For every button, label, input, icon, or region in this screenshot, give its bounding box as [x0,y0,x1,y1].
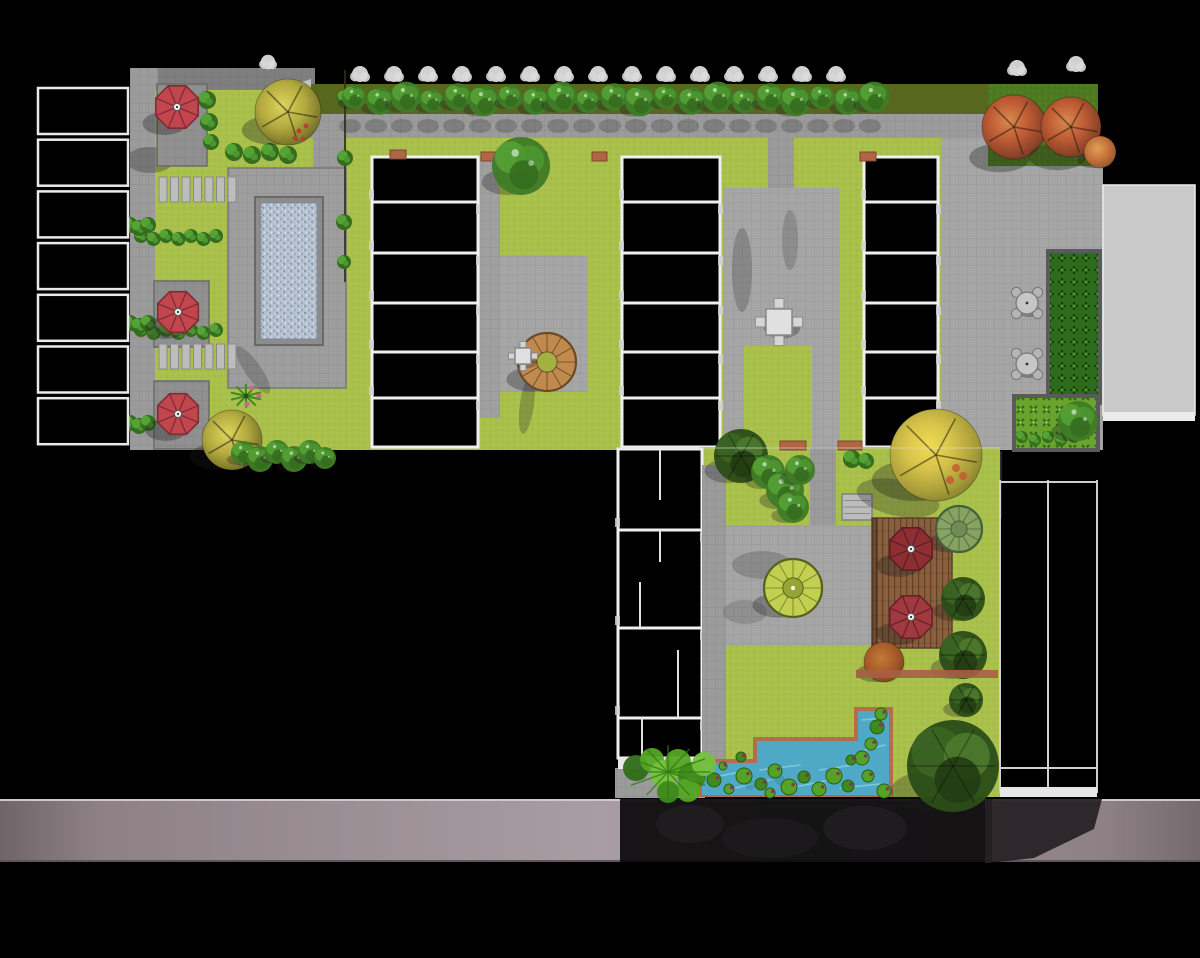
tree-parasol-tan-crown [537,352,557,372]
patio-table-chair [508,353,514,359]
lily-pad [812,782,826,796]
street-tree-highlight [869,88,873,92]
patio-table-chair [520,341,526,347]
lily-flower [869,773,872,776]
lily-flower [771,790,774,793]
street-tree-highlight [740,94,743,97]
shrub-mass-lobe [794,467,809,482]
building-block-a-tick [369,241,374,250]
street-tree-lobe [505,95,517,107]
path-central-south-texture [810,447,836,529]
shadow [339,119,361,133]
lily-flower [805,774,808,777]
flower-accents [959,472,967,480]
stepping-stones [228,177,236,202]
patio-table-chair [793,317,803,327]
fence-shrub-hl [343,261,349,267]
townhouse-row-west [38,398,128,444]
shrub-mass-highlight [790,486,794,490]
shrub-mass-highlight [772,469,775,472]
street-tree-lobe [478,98,493,113]
street-tree-shadow [656,805,724,843]
building-east [1103,185,1195,415]
patio-table-chair [520,364,526,370]
sketch-tree-lobe [259,60,268,69]
patio-table [515,348,531,364]
sketch-tree-row-lobe [598,72,608,82]
townhouse-row-west [38,140,128,186]
shrub-highlight [280,450,282,452]
shrub-highlight [273,445,276,448]
sketch-tree-row-lobe [656,72,666,82]
shrub-highlight [290,451,293,454]
lily-flower [791,783,794,786]
street-tree-highlight [825,95,827,97]
lily-flower [742,754,745,757]
shrub-row-hl [190,329,196,335]
townhouse-row-west [38,295,128,341]
flower-accents [301,137,306,142]
shadow [495,119,517,133]
patio-table [766,309,792,335]
street-curb-bottom [0,860,1200,862]
sketch-tree-row-lobe [530,72,540,82]
stepping-stones [194,177,202,202]
street-tree-lobe [739,99,751,111]
sketch-tree-row-lobe [826,72,836,82]
street-tree-highlight [591,99,593,101]
shrub-row-hl [215,329,221,335]
street-tree-lobe [661,95,673,107]
lily-flower [886,787,889,790]
shadow [443,119,465,133]
shrub-row-hl [202,332,208,338]
street-tree-highlight [773,94,776,97]
lily-pad [846,755,856,765]
building-block-c-tick [861,190,866,199]
sketch-tree-row-lobe [768,72,778,82]
street-tree-highlight [375,93,379,97]
street-tree-highlight [357,95,359,97]
street-tree-highlight [878,94,881,97]
leaf-plants-hl [1047,436,1052,441]
shadow [859,119,881,133]
street-tree-highlight [635,92,639,96]
fence-shrub-hl [343,220,349,226]
stepping-stones [228,344,236,369]
shrub-hl [210,140,216,146]
lily-flower [836,772,839,775]
building-east-sill [1103,412,1195,421]
walkway-hedge-hl [147,223,153,229]
shrub-mass-highlight [788,498,792,502]
flower-accents [257,394,262,399]
sketch-tree-row-lobe [622,72,632,82]
plaza-shadow [732,228,752,312]
shadow [807,119,829,133]
bench [592,152,607,161]
shrub-row-hl [177,238,183,244]
lily-flower [864,754,867,757]
lily-flower [777,767,780,770]
cafe-table-center [1026,363,1029,366]
bench [860,152,876,161]
shrub-row-hl [269,150,276,157]
building-block-b-tick [619,340,624,349]
lap-pool-texture [261,203,317,339]
shadow [469,119,491,133]
shadow [573,119,595,133]
tree-parasol-lime-center [791,586,795,590]
umbrella-dark-red-pole [910,548,912,550]
shrub-highlight [246,451,248,453]
bench [390,150,406,159]
wood-deck-shade [872,518,878,648]
bench [780,441,806,450]
street-tree-lobe [765,94,779,108]
sketch-tree-row-lobe [724,72,734,82]
sketch-tree-row-lobe [564,72,574,82]
tree-dark-lobe [954,595,976,617]
stepping-stones [159,177,167,202]
shrub-highlight [239,446,242,449]
sketch-tree-row-lobe [418,72,428,82]
street-tree-highlight [791,92,795,96]
street-tree-highlight [383,98,386,101]
street-tree-highlight [584,94,587,97]
lily-pad [877,784,891,798]
street-tree-lobe [349,95,361,107]
street-tree-highlight [617,94,620,97]
sketch-tree-row-lobe [350,72,360,82]
street-tree-highlight [479,92,483,96]
building-block-c-tick [861,386,866,395]
lily-pad [755,778,767,790]
street-tree-highlight [566,94,569,97]
shadow [391,119,413,133]
shrub-row-hl [287,153,294,160]
shrub-highlight [321,452,324,455]
building-block-d-tick [615,706,620,715]
building-block-a-tick [369,340,374,349]
sketch-tree-row-lobe [666,72,676,82]
shrub-highlight [306,445,309,448]
lily-flower [821,785,824,788]
lily-pad [724,784,734,794]
building-block-d-tick [615,616,620,625]
shrub-highlight [1083,417,1087,421]
sketch-tree-lobe [1076,62,1086,72]
shrub-hl [865,459,871,465]
lily-pad [862,770,874,782]
townhouse-row-west [38,88,128,134]
shrub-mass-highlight [804,467,807,470]
shadow [729,119,751,133]
fence-shrub-hl [344,156,350,162]
building-block-a-tick [369,386,374,395]
tree-dark-large-lobe [935,757,981,803]
sketch-tree-row-lobe [394,72,404,82]
plaza-shadow [782,210,798,270]
shrub-highlight [313,450,315,452]
stepping-stones [205,177,213,202]
building-block-d-tick [615,518,620,527]
street-tree-highlight [453,89,457,93]
sketch-tree-row-lobe [700,72,710,82]
shrub-mass-lobe [787,504,803,520]
shrub-row-hl [190,235,196,241]
path-a-texture [480,158,500,418]
stepping-stones [194,344,202,369]
stepping-stones [159,344,167,369]
umbrella-red-pole [177,311,179,313]
shadow [417,119,439,133]
patio-table-chair [755,317,765,327]
lily-flower [730,786,733,789]
sketch-tree-lobe [1007,66,1017,76]
shrub-hl [206,98,213,105]
tree-green-lobe [509,160,538,189]
lily-pad [781,779,797,795]
tree-green-highlight [511,149,519,157]
landscape-plan-stage [0,0,1200,958]
street-tree-highlight [506,90,509,93]
street-tree-highlight [818,90,821,93]
landscape-plan-canvas [0,0,1200,958]
stepping-stones [182,344,190,369]
sketch-tree-row-lobe [588,72,598,82]
shadow [599,119,621,133]
shrub-row-hl [202,238,208,244]
flower-accents [952,464,960,472]
building-block-c-tick [936,355,941,364]
flower-accents [245,402,250,407]
patio-table-chair [774,336,784,346]
street-tree-highlight [747,99,749,101]
building-block-b-tick [718,401,723,410]
street-tree-highlight [843,93,847,97]
building-block-a-tick [369,291,374,300]
shrub-mass-highlight [795,461,799,465]
lily-pad [798,771,810,783]
shrub-lobe [1070,417,1090,437]
stepping-stones [217,177,225,202]
shrub-row-hl [251,153,258,160]
street-tree-highlight [435,99,437,101]
cafe-table-center [1026,302,1029,305]
shrub-row-hl [165,235,171,241]
lily-pad [870,720,884,734]
street-tree-highlight [765,89,769,93]
sketch-tree-row-lobe [486,72,496,82]
shrub-highlight [328,456,330,458]
flower-accents [250,386,255,391]
street-tree-lobe [556,94,571,109]
building-block-e-sill [1000,787,1097,797]
street-tree-highlight [851,98,854,101]
street-tree-lobe [817,95,829,107]
shadow [365,119,387,133]
flower-accents [946,476,954,484]
lily-flower [882,711,885,714]
shrub-lobe [321,456,332,467]
sketch-tree-row-lobe [360,72,370,82]
lily-flower [762,781,765,784]
shadow [781,119,803,133]
street-tree-lobe [868,94,883,109]
palm-plant-crown [244,394,249,399]
building-block-b-tick [619,241,624,250]
street-tree-lobe [609,94,623,108]
lily-flower [872,741,875,744]
lily-flower [723,763,726,766]
shrub-mass-highlight [797,504,800,507]
building-block-b-tick [718,306,723,315]
lily-pad [768,764,782,778]
stepping-stones [217,344,225,369]
street-tree-highlight [557,88,561,92]
lily-flower [716,776,719,779]
street-tree-highlight [401,88,405,92]
street-tree-lobe [712,94,727,109]
sketch-tree-row-lobe [496,72,506,82]
flower-accents [304,124,309,129]
tree-green-highlight [528,160,534,166]
lily-pad [875,708,887,720]
shrub-hl [851,457,858,464]
building-block-c-tick [861,340,866,349]
shadow [703,119,725,133]
shadow [677,119,699,133]
sketch-tree-row-lobe [836,72,846,82]
street-tree-highlight [669,95,671,97]
lily-flower [849,783,852,786]
sketch-tree-row-lobe [384,72,394,82]
street-tree-lobe [634,98,649,113]
shrub-highlight [256,451,259,454]
street-tree-shadow [823,806,907,850]
sketch-tree-row-lobe [632,72,642,82]
sketch-tree-row-lobe [758,72,768,82]
street-tree-highlight [722,94,725,97]
street-tree-highlight [488,98,491,101]
sketch-tree-row-lobe [554,72,564,82]
street-tree-lobe [427,99,439,111]
lily-pad [736,768,752,784]
bench [838,441,862,450]
bench-strip [856,670,998,678]
lily-pad [765,788,775,798]
building-block-b-tick [718,205,723,214]
building-block-b-tick [718,256,723,265]
lily-flower [746,772,749,775]
lily-pad [865,738,877,750]
stepping-stones [171,177,179,202]
shrub-row-hl [233,150,240,157]
building-block-c-tick [861,241,866,250]
building-block-b-tick [619,190,624,199]
building-block-a-tick [369,190,374,199]
street-tree-highlight [513,95,515,97]
lily-pad [855,751,869,765]
tree-dark-lobe [959,697,976,714]
sketch-tree-row-lobe [452,72,462,82]
lily-flower [852,757,855,760]
shadow [833,119,855,133]
building-block-c-tick [936,306,941,315]
leaf-plants-hl [1034,439,1039,444]
shadow [755,119,777,133]
building-block-b-tick [619,386,624,395]
path-south-texture [702,465,726,767]
tree-parasol-sage-crown [951,521,967,537]
shadow [521,119,543,133]
street-tree-lobe [453,94,467,108]
building-block-c-tick [861,291,866,300]
townhouse-row-west [38,243,128,289]
building-block-c-tick [936,256,941,265]
street-tree-highlight [531,93,535,97]
street-tree-highlight [461,94,464,97]
street-tree-highlight [662,90,665,93]
street-tree-lobe [400,94,415,109]
shadow [651,119,673,133]
building-block-b-tick [619,291,624,300]
sketch-tree-lobe [268,60,277,69]
stepping-stones [205,344,213,369]
street-tree-highlight [695,98,698,101]
lily-pad [707,773,721,787]
shrub-row-hl [152,238,158,244]
street-tree-highlight [800,98,803,101]
lily-pad [842,780,854,792]
lily-flower [879,723,882,726]
street-tree-highlight [687,93,691,97]
street-tree-highlight [609,89,613,93]
street-tree-highlight [410,94,413,97]
shadow [547,119,569,133]
flower-accents [293,136,298,141]
umbrella-red-pole [177,413,179,415]
sketch-tree-row-lobe [520,72,530,82]
street-tree-lobe [790,98,805,113]
street-tree-highlight [428,94,431,97]
sketch-tree-row-lobe [690,72,700,82]
sketch-tree-row-lobe [428,72,438,82]
path-central-north-texture [768,135,794,191]
street-tree-highlight [350,90,353,93]
sketch-tree-lobe [1066,62,1076,72]
sketch-tree-row-lobe [802,72,812,82]
leaf-plants-hl [1021,436,1026,441]
townhouse-row-west [38,347,128,393]
patio-table-chair [531,353,537,359]
street-tree-highlight [539,98,542,101]
shrub-hl [208,120,215,127]
lily-pad [826,768,842,784]
building-block-c-tick [936,205,941,214]
building-block-b-tick [718,355,723,364]
tree-autumn [1084,136,1116,168]
shadow [625,119,647,133]
street-tree-highlight [713,88,717,92]
stepping-stones [171,344,179,369]
sketch-tree-row-lobe [792,72,802,82]
street-tree-highlight [644,98,647,101]
shrub-highlight [1071,409,1076,414]
townhouse-row-west [38,191,128,237]
shrub-row-hl [215,235,221,241]
